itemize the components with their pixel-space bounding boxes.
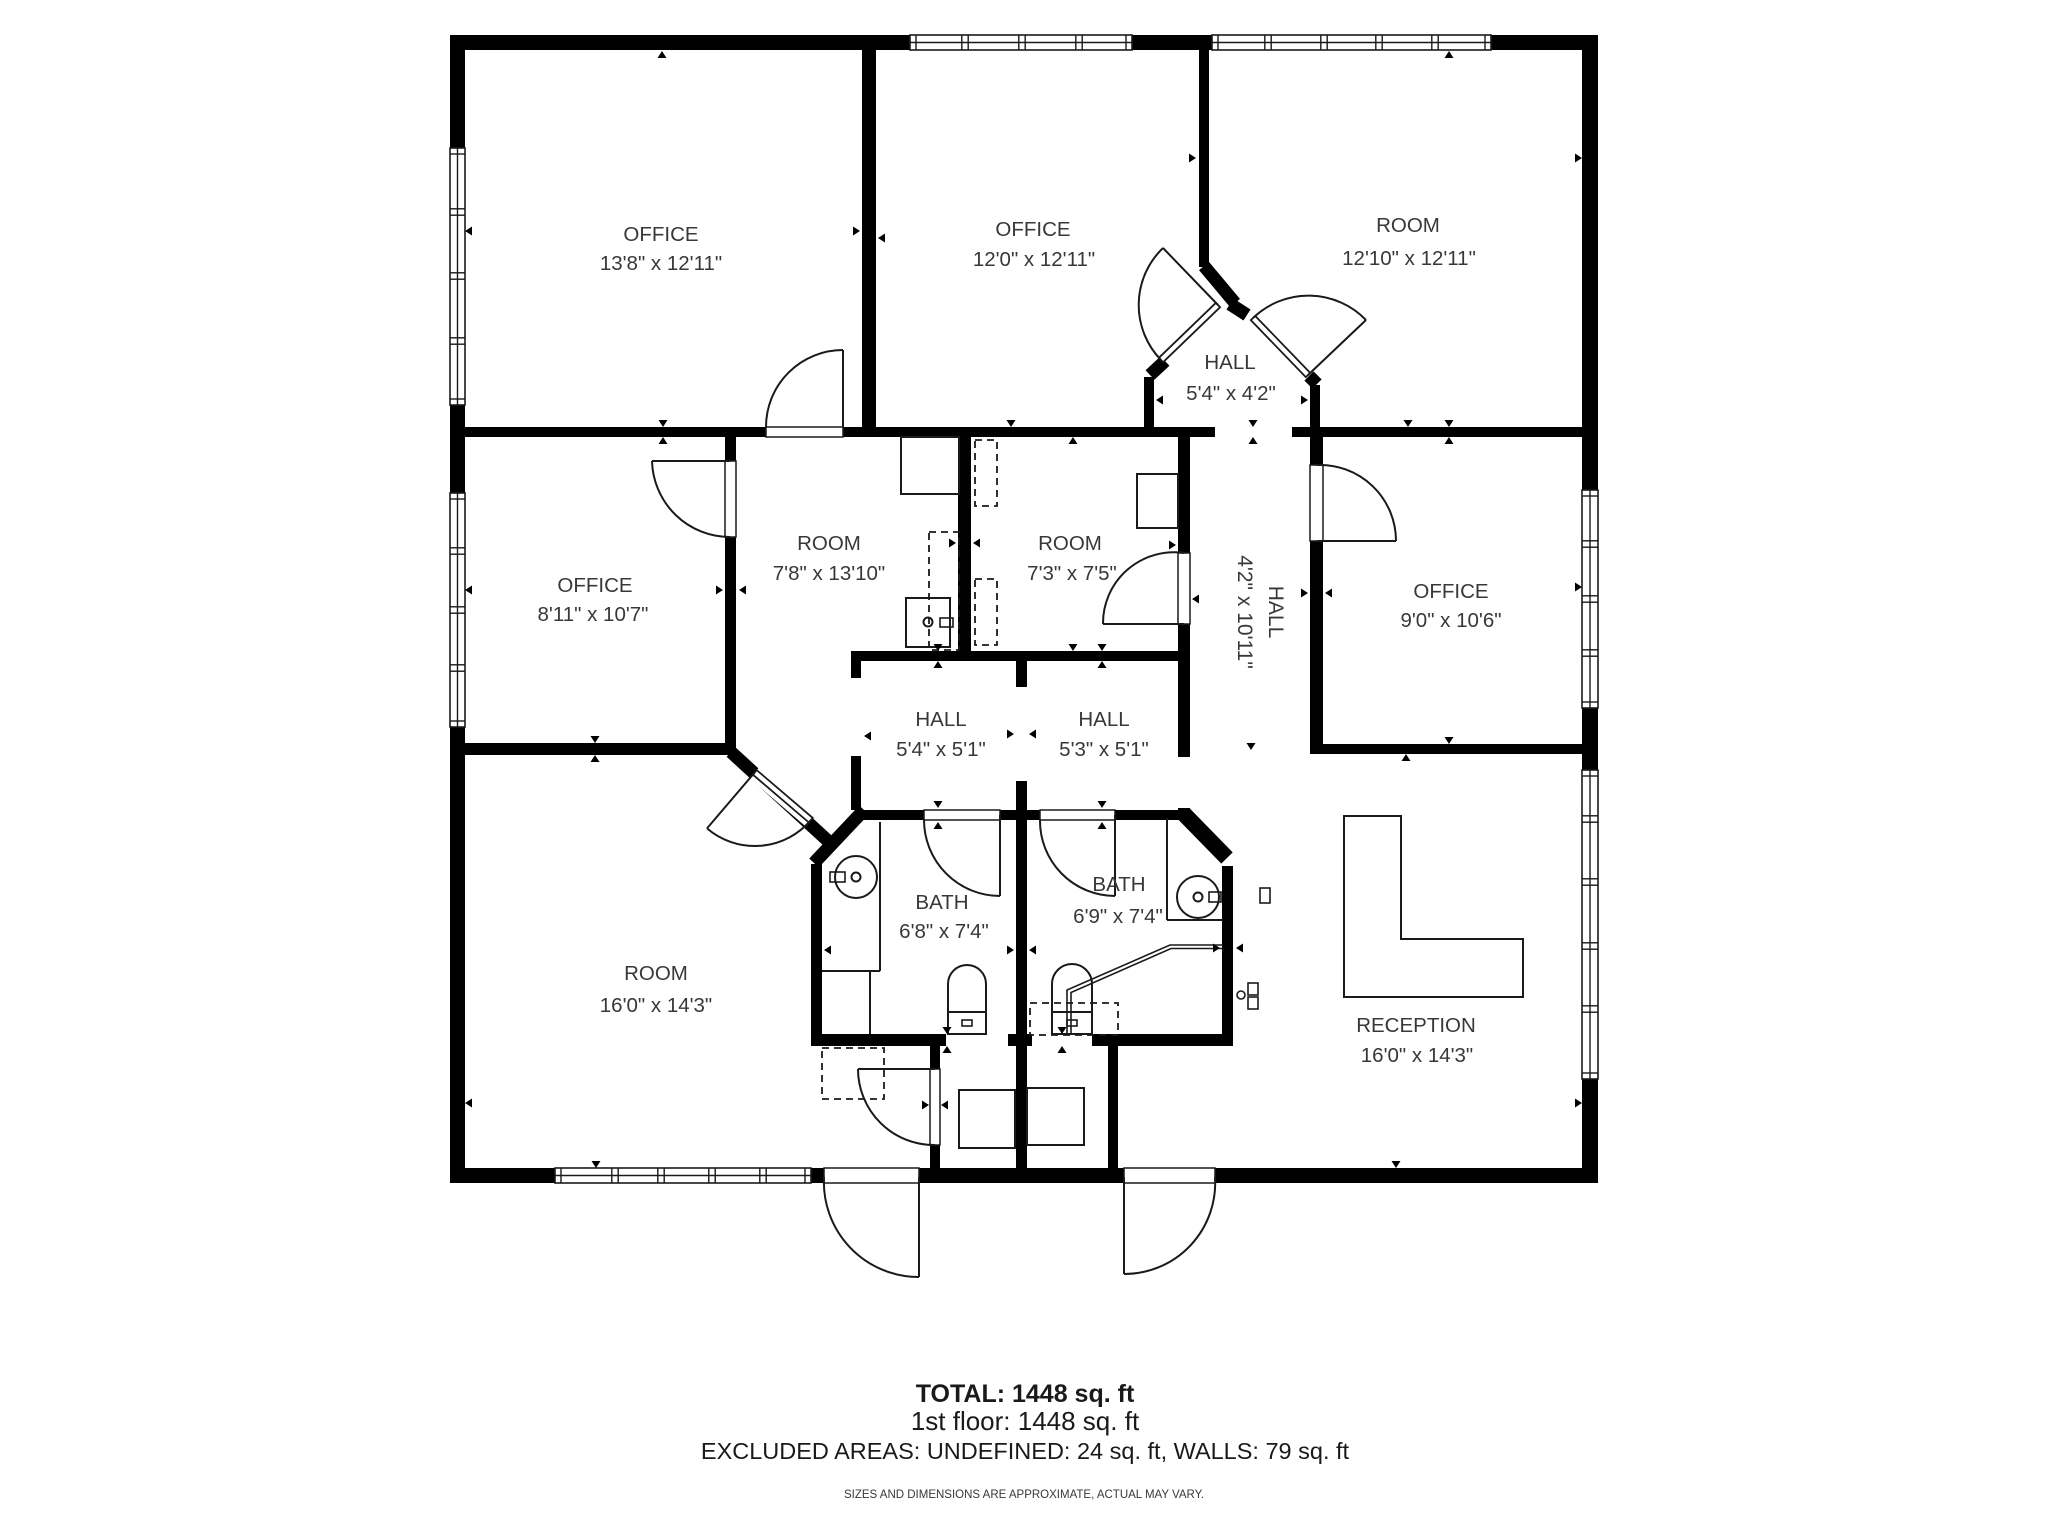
svg-text:EXCLUDED AREAS: UNDEFINED: 24: EXCLUDED AREAS: UNDEFINED: 24 sq. ft, WA… — [701, 1438, 1350, 1464]
svg-text:SIZES AND DIMENSIONS ARE APPRO: SIZES AND DIMENSIONS ARE APPROXIMATE, AC… — [844, 1489, 1204, 1501]
svg-text:16'0" x 14'3": 16'0" x 14'3" — [1361, 1044, 1473, 1067]
svg-text:13'8" x 12'11": 13'8" x 12'11" — [600, 252, 722, 275]
svg-text:5'4" x 4'2": 5'4" x 4'2" — [1186, 382, 1276, 405]
svg-text:HALL: HALL — [1264, 586, 1287, 639]
svg-text:ROOM: ROOM — [624, 962, 688, 985]
svg-text:12'0" x 12'11": 12'0" x 12'11" — [973, 248, 1095, 271]
svg-text:BATH: BATH — [1092, 873, 1145, 896]
svg-text:4'2" x 10'11": 4'2" x 10'11" — [1233, 555, 1256, 669]
svg-text:OFFICE: OFFICE — [995, 218, 1070, 241]
svg-text:12'10" x 12'11": 12'10" x 12'11" — [1342, 247, 1476, 270]
svg-text:6'8" x 7'4": 6'8" x 7'4" — [899, 920, 989, 943]
svg-text:OFFICE: OFFICE — [1413, 580, 1488, 603]
svg-text:HALL: HALL — [1204, 351, 1255, 374]
svg-text:HALL: HALL — [915, 708, 966, 731]
svg-text:OFFICE: OFFICE — [557, 574, 632, 597]
svg-text:RECEPTION: RECEPTION — [1356, 1014, 1476, 1037]
svg-text:5'3" x 5'1": 5'3" x 5'1" — [1059, 738, 1149, 761]
svg-text:OFFICE: OFFICE — [623, 223, 698, 246]
svg-text:HALL: HALL — [1078, 708, 1129, 731]
svg-text:ROOM: ROOM — [1038, 532, 1102, 555]
svg-text:ROOM: ROOM — [1376, 214, 1440, 237]
svg-text:16'0" x 14'3": 16'0" x 14'3" — [600, 994, 712, 1017]
svg-text:9'0" x 10'6": 9'0" x 10'6" — [1400, 609, 1501, 632]
svg-text:7'3" x 7'5": 7'3" x 7'5" — [1027, 562, 1117, 585]
svg-text:ROOM: ROOM — [797, 532, 861, 555]
svg-text:8'11" x 10'7": 8'11" x 10'7" — [538, 603, 649, 626]
svg-text:TOTAL: 1448 sq. ft: TOTAL: 1448 sq. ft — [916, 1380, 1135, 1408]
svg-text:7'8" x 13'10": 7'8" x 13'10" — [773, 562, 885, 585]
svg-text:1st floor: 1448 sq. ft: 1st floor: 1448 sq. ft — [911, 1406, 1140, 1436]
svg-text:5'4" x 5'1": 5'4" x 5'1" — [896, 738, 986, 761]
svg-text:BATH: BATH — [915, 891, 968, 914]
svg-text:6'9" x 7'4": 6'9" x 7'4" — [1073, 905, 1163, 928]
